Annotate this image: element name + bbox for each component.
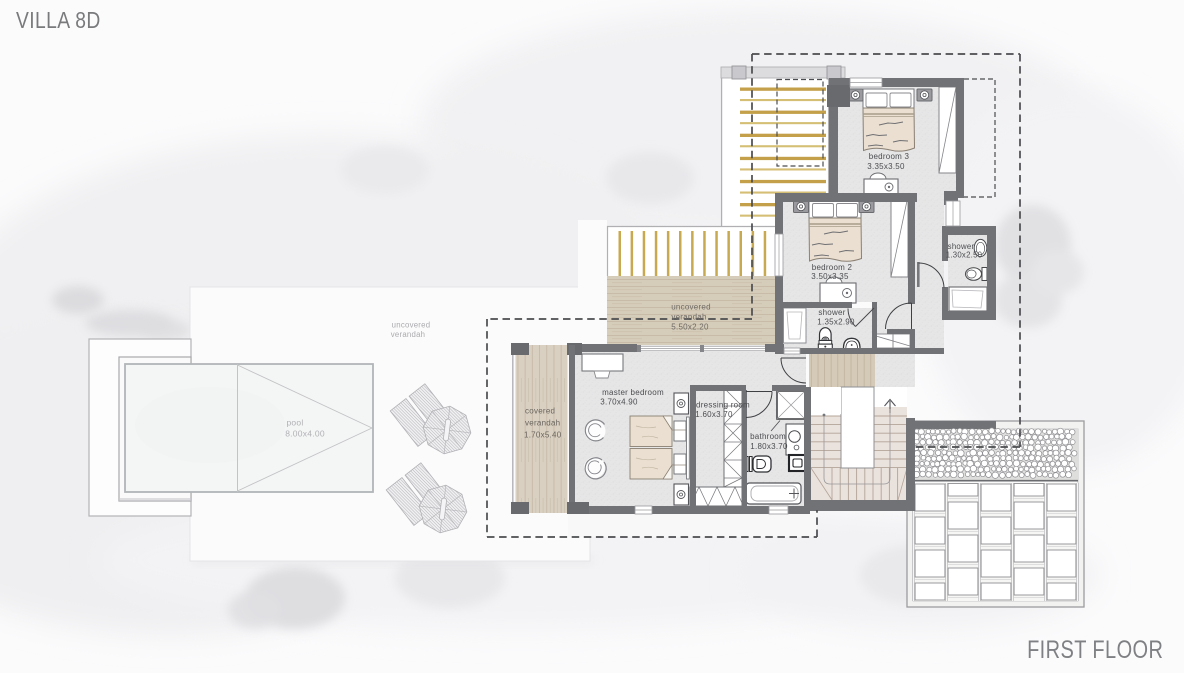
svg-text:covered: covered xyxy=(525,407,555,416)
svg-text:3.35x3.50: 3.35x3.50 xyxy=(867,162,905,171)
svg-text:bedroom 3: bedroom 3 xyxy=(869,152,910,161)
svg-text:dressing room: dressing room xyxy=(696,401,750,410)
svg-text:verandah: verandah xyxy=(391,330,426,339)
svg-text:1.35x2.90: 1.35x2.90 xyxy=(817,318,855,327)
svg-text:bathroom: bathroom xyxy=(750,432,786,441)
svg-text:1.30x2.50: 1.30x2.50 xyxy=(946,251,983,260)
svg-text:uncovered: uncovered xyxy=(392,321,431,330)
svg-text:shower: shower xyxy=(818,308,845,317)
svg-text:verandah: verandah xyxy=(525,419,560,428)
svg-text:uncovered: uncovered xyxy=(671,303,711,312)
svg-text:1.80x3.70: 1.80x3.70 xyxy=(750,442,788,451)
svg-text:3.70x4.90: 3.70x4.90 xyxy=(600,398,638,407)
svg-text:5.50x2.20: 5.50x2.20 xyxy=(671,323,709,332)
svg-text:1.70x5.40: 1.70x5.40 xyxy=(524,431,562,440)
svg-text:verandah: verandah xyxy=(671,313,706,322)
svg-text:1.60x3.70: 1.60x3.70 xyxy=(695,410,733,419)
svg-text:bedroom 2: bedroom 2 xyxy=(812,263,853,272)
svg-text:3.50x3.35: 3.50x3.35 xyxy=(811,272,849,281)
svg-text:master bedroom: master bedroom xyxy=(602,388,664,397)
svg-text:8.00x4.00: 8.00x4.00 xyxy=(285,429,325,439)
svg-text:pool: pool xyxy=(286,418,303,428)
